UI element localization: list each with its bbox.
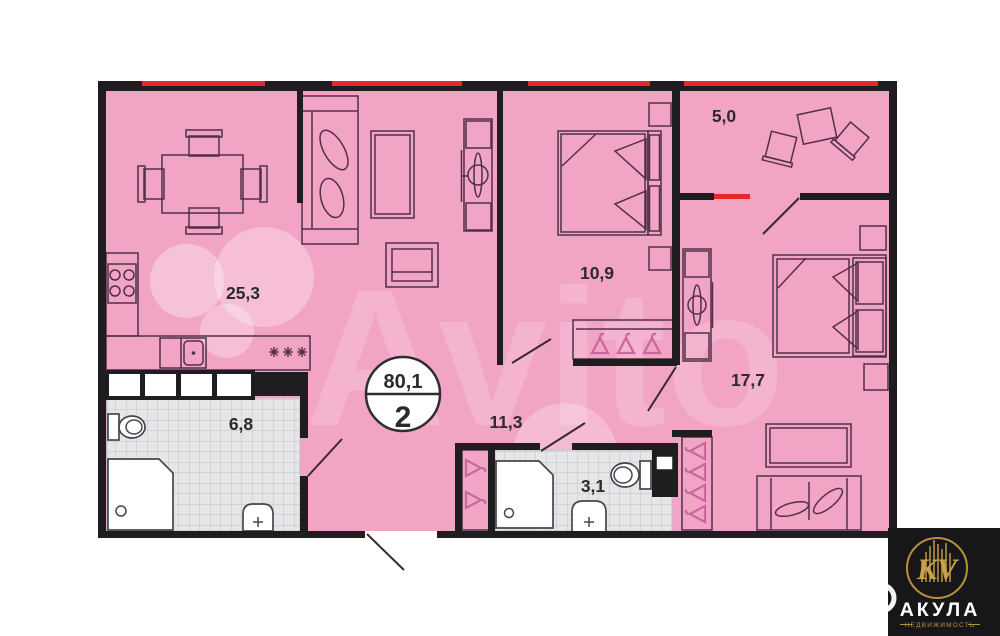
wall-wc-top xyxy=(455,443,540,450)
sink-bathroom xyxy=(243,504,273,531)
wall-left xyxy=(98,85,106,538)
wall-bedroom-1-right xyxy=(672,85,680,365)
wall-bottom xyxy=(437,531,897,538)
room-area-label-wc: 3,1 xyxy=(581,476,606,496)
agency-logo: KV АКУЛА НЕДВИЖИМОСТЬ xyxy=(888,528,1000,636)
floor-plan-image: Avito xyxy=(0,0,1000,636)
wall-bathroom-right xyxy=(300,396,308,438)
sink-wc xyxy=(572,501,606,532)
wall-bathroom-corner xyxy=(253,372,308,396)
logo-monogram: KV xyxy=(916,553,960,586)
room-area-label-bedroom-2: 17,7 xyxy=(731,370,765,390)
wall-balcony xyxy=(800,193,889,200)
duct-shaft xyxy=(656,456,673,470)
window-living xyxy=(142,81,265,86)
wall-wc-left xyxy=(488,448,495,531)
wall-wardrobe-bottom xyxy=(573,359,677,366)
wall-right xyxy=(889,85,897,538)
bathroom-niche-cabinets xyxy=(107,372,253,398)
window-bedroom-1 xyxy=(528,81,650,86)
room-area-label-bedroom-1: 10,9 xyxy=(580,263,614,283)
window-balcony xyxy=(684,81,878,86)
wall-balcony xyxy=(680,193,714,200)
badge-total-area: 80,1 xyxy=(384,371,423,393)
room-area-label-balcony: 5,0 xyxy=(712,106,737,126)
wall-wc-top xyxy=(572,443,678,450)
watermark-text: Avito xyxy=(305,249,785,467)
logo-tagline: НЕДВИЖИМОСТЬ xyxy=(905,622,976,629)
wall-bottom xyxy=(98,531,365,538)
window-living-2 xyxy=(332,81,462,86)
toilet-wc xyxy=(611,461,651,489)
badge-rooms-count: 2 xyxy=(395,401,412,434)
wall-living-stub xyxy=(297,85,303,203)
wall-bathroom-right xyxy=(300,476,308,531)
toilet-bathroom xyxy=(108,414,145,440)
shower-wc xyxy=(496,461,553,528)
room-area-label-kitchen-living: 25,3 xyxy=(226,283,260,303)
wall-wardrobe-top xyxy=(672,430,712,437)
wall-wardrobe-left xyxy=(455,448,462,531)
wall-bedroom-1-left xyxy=(497,85,503,365)
room-area-label-hallway: 11,3 xyxy=(489,412,522,432)
room-area-label-bathroom: 6,8 xyxy=(229,414,254,434)
window-balcony-inner xyxy=(714,194,750,199)
shower-bathroom xyxy=(108,459,173,530)
logo-name: АКУЛА xyxy=(900,599,981,621)
